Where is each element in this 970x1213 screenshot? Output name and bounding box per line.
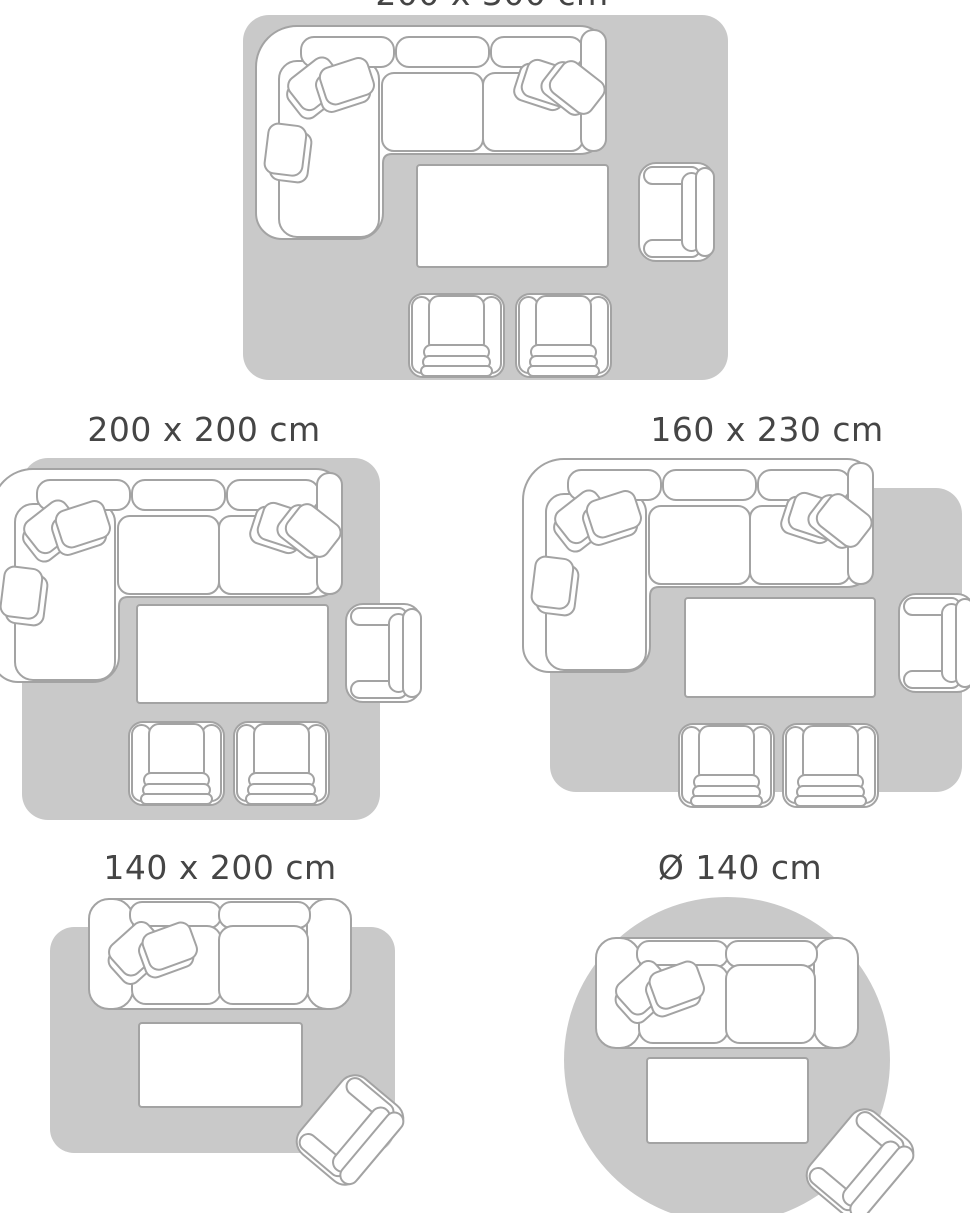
- rug-diagram-160x230: [510, 458, 970, 820]
- rug-size-guide: 200 x 300 cm 200 x 200 cm 160 x 230 cm: [0, 0, 970, 1213]
- size-label-200x300: 200 x 300 cm: [375, 0, 608, 10]
- armchair-icon: [639, 163, 714, 261]
- club-chair-icon: [129, 722, 224, 805]
- coffee-table-icon: [139, 1023, 302, 1107]
- size-label-140x200: 140 x 200 cm: [103, 851, 336, 884]
- club-chair-icon: [679, 724, 774, 807]
- club-chair-icon: [783, 724, 878, 807]
- size-label-200x200: 200 x 200 cm: [87, 413, 320, 446]
- armchair-icon: [899, 594, 970, 692]
- rug-diagram-140x200: [20, 895, 440, 1213]
- coffee-table-icon: [647, 1058, 808, 1143]
- rug-diagram-200x200: [0, 458, 430, 820]
- coffee-table-icon: [417, 165, 608, 267]
- coffee-table-icon: [685, 598, 875, 697]
- club-chair-icon: [516, 294, 611, 377]
- armchair-icon: [346, 604, 421, 702]
- two-seat-sofa-icon: [596, 938, 858, 1048]
- size-label-round-140: Ø 140 cm: [658, 851, 822, 884]
- coffee-table-icon: [137, 605, 328, 703]
- rug-diagram-round-140: [540, 895, 970, 1213]
- club-chair-icon: [409, 294, 504, 377]
- size-label-160x230: 160 x 230 cm: [650, 413, 883, 446]
- club-chair-icon: [234, 722, 329, 805]
- rug-diagram-200x300: [243, 15, 728, 380]
- two-seat-sofa-icon: [89, 899, 351, 1009]
